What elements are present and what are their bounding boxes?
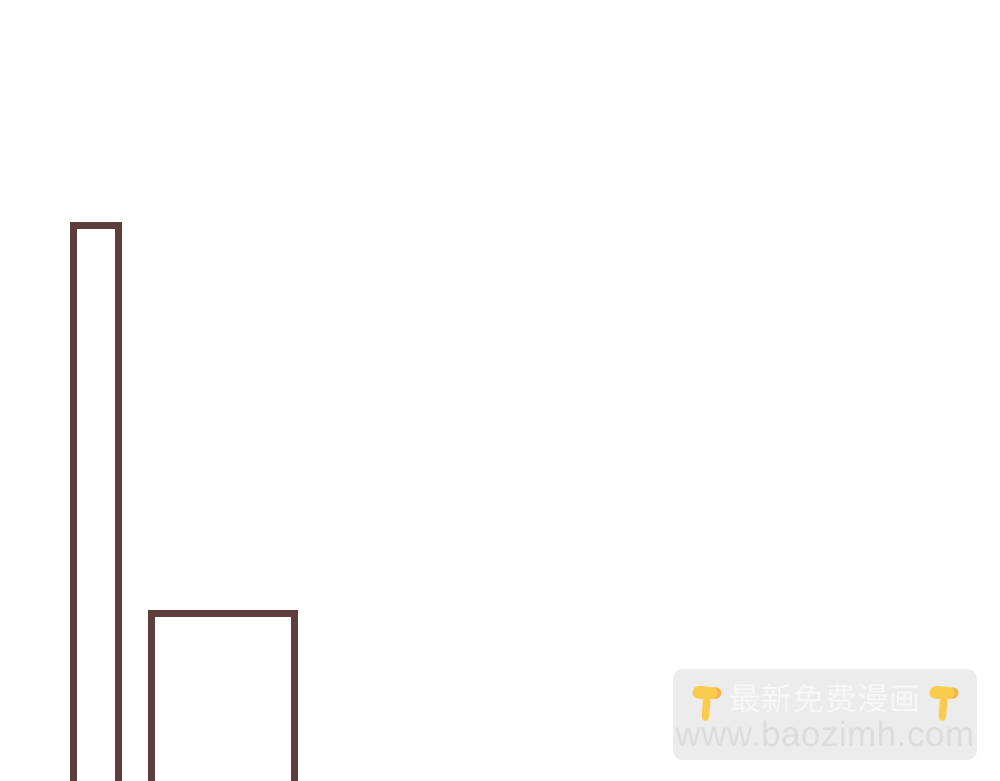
pointing-down-icon bbox=[688, 682, 725, 723]
watermark-title-row: 最新免费漫画 bbox=[688, 679, 962, 719]
watermark-badge: 最新免费漫画 www.baozimh.com bbox=[673, 669, 977, 760]
comic-panel-outline-wide bbox=[148, 610, 298, 781]
comic-page: 最新免费漫画 www.baozimh.com bbox=[0, 0, 1000, 781]
watermark-title: 最新免费漫画 bbox=[729, 684, 921, 715]
pointing-down-icon bbox=[925, 682, 962, 723]
comic-panel-outline-tall bbox=[70, 222, 122, 781]
